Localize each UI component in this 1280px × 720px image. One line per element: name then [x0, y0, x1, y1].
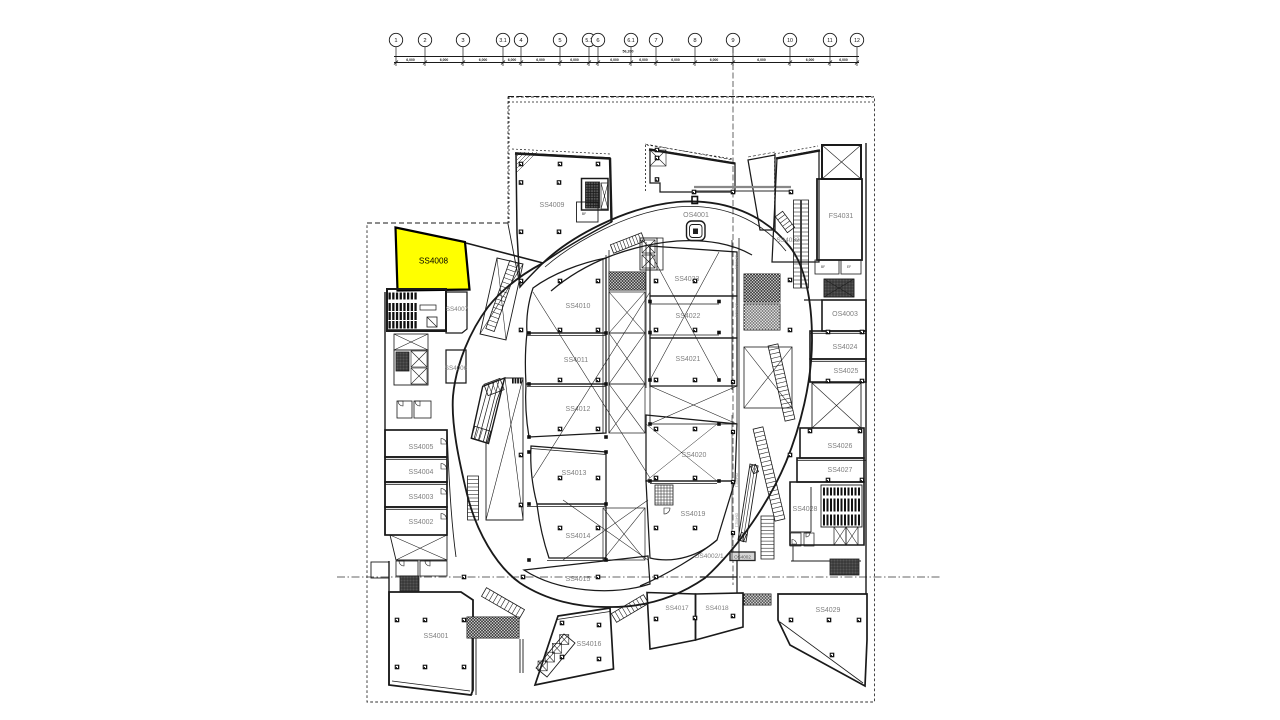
- svg-text:5: 5: [558, 38, 561, 44]
- svg-text:SS4017: SS4017: [665, 605, 689, 612]
- svg-text:12: 12: [854, 38, 860, 44]
- svg-text:OS4002/1: OS4002/1: [694, 553, 724, 560]
- svg-text:SS4019: SS4019: [681, 511, 706, 518]
- svg-text:6: 6: [596, 38, 599, 44]
- svg-text:EF: EF: [847, 265, 851, 269]
- svg-text:7: 7: [654, 38, 657, 44]
- svg-text:56,200: 56,200: [623, 50, 634, 54]
- svg-text:6,000: 6,000: [610, 58, 619, 62]
- svg-text:SS4001: SS4001: [424, 633, 449, 640]
- svg-text:SS4026: SS4026: [828, 443, 853, 450]
- svg-text:6,000: 6,000: [406, 58, 415, 62]
- svg-text:11: 11: [827, 38, 832, 44]
- svg-text:6,000: 6,000: [671, 58, 680, 62]
- svg-text:6,000: 6,000: [806, 58, 815, 62]
- svg-text:OS4002.1: OS4002.1: [735, 303, 739, 318]
- svg-text:3.1: 3.1: [499, 38, 506, 44]
- svg-text:6,000: 6,000: [570, 58, 579, 62]
- svg-text:SS4027: SS4027: [828, 467, 853, 474]
- svg-text:8: 8: [693, 38, 696, 44]
- svg-text:FS4031: FS4031: [829, 213, 854, 220]
- svg-text:SS4008: SS4008: [419, 257, 449, 266]
- svg-text:6,000: 6,000: [536, 58, 545, 62]
- svg-text:SS4021: SS4021: [676, 356, 701, 363]
- svg-text:SS4012: SS4012: [566, 406, 591, 413]
- svg-text:10: 10: [787, 38, 793, 44]
- svg-text:SS4029: SS4029: [816, 607, 841, 614]
- svg-text:OS4001: OS4001: [683, 212, 709, 219]
- svg-text:SS4024: SS4024: [833, 344, 858, 351]
- svg-text:SS4025: SS4025: [834, 368, 859, 375]
- svg-text:6,000: 6,000: [639, 58, 648, 62]
- svg-text:6,000: 6,000: [479, 58, 488, 62]
- svg-text:6,000: 6,000: [440, 58, 449, 62]
- svg-text:6,000: 6,000: [839, 58, 848, 62]
- svg-text:6,000: 6,000: [710, 58, 719, 62]
- svg-text:9: 9: [731, 38, 734, 44]
- svg-text:BF: BF: [582, 212, 586, 216]
- svg-text:SS4020: SS4020: [682, 452, 707, 459]
- svg-text:6,000: 6,000: [757, 58, 766, 62]
- svg-text:SS4016: SS4016: [577, 641, 602, 648]
- svg-text:SS4009: SS4009: [540, 202, 565, 209]
- svg-text:SS4006: SS4006: [445, 365, 468, 372]
- svg-text:SS4004: SS4004: [409, 469, 434, 476]
- svg-text:SS4014: SS4014: [566, 533, 591, 540]
- svg-text:OS4002: OS4002: [734, 555, 751, 560]
- svg-text:SS4007: SS4007: [446, 306, 469, 313]
- svg-text:1: 1: [394, 38, 397, 44]
- svg-text:SS4018: SS4018: [705, 605, 729, 612]
- svg-text:SS4013: SS4013: [562, 470, 587, 477]
- svg-text:SS4003: SS4003: [409, 494, 434, 501]
- svg-text:SS4022: SS4022: [676, 313, 701, 320]
- svg-text:SS4028: SS4028: [793, 506, 818, 513]
- svg-text:OS4002.1: OS4002.1: [735, 255, 739, 270]
- svg-text:6.1: 6.1: [627, 38, 634, 44]
- svg-text:2: 2: [423, 38, 426, 44]
- svg-text:SS4005: SS4005: [409, 444, 434, 451]
- svg-text:6,000: 6,000: [508, 58, 517, 62]
- svg-text:BF: BF: [821, 265, 825, 269]
- svg-text:OS4002.1: OS4002.1: [735, 513, 739, 528]
- svg-text:SS4010: SS4010: [566, 303, 591, 310]
- svg-text:SS4032: SS4032: [776, 237, 800, 244]
- svg-text:SS4015: SS4015: [566, 576, 591, 583]
- svg-text:OS4003: OS4003: [832, 311, 858, 318]
- svg-text:3: 3: [461, 38, 464, 44]
- svg-text:SS4002: SS4002: [409, 519, 434, 526]
